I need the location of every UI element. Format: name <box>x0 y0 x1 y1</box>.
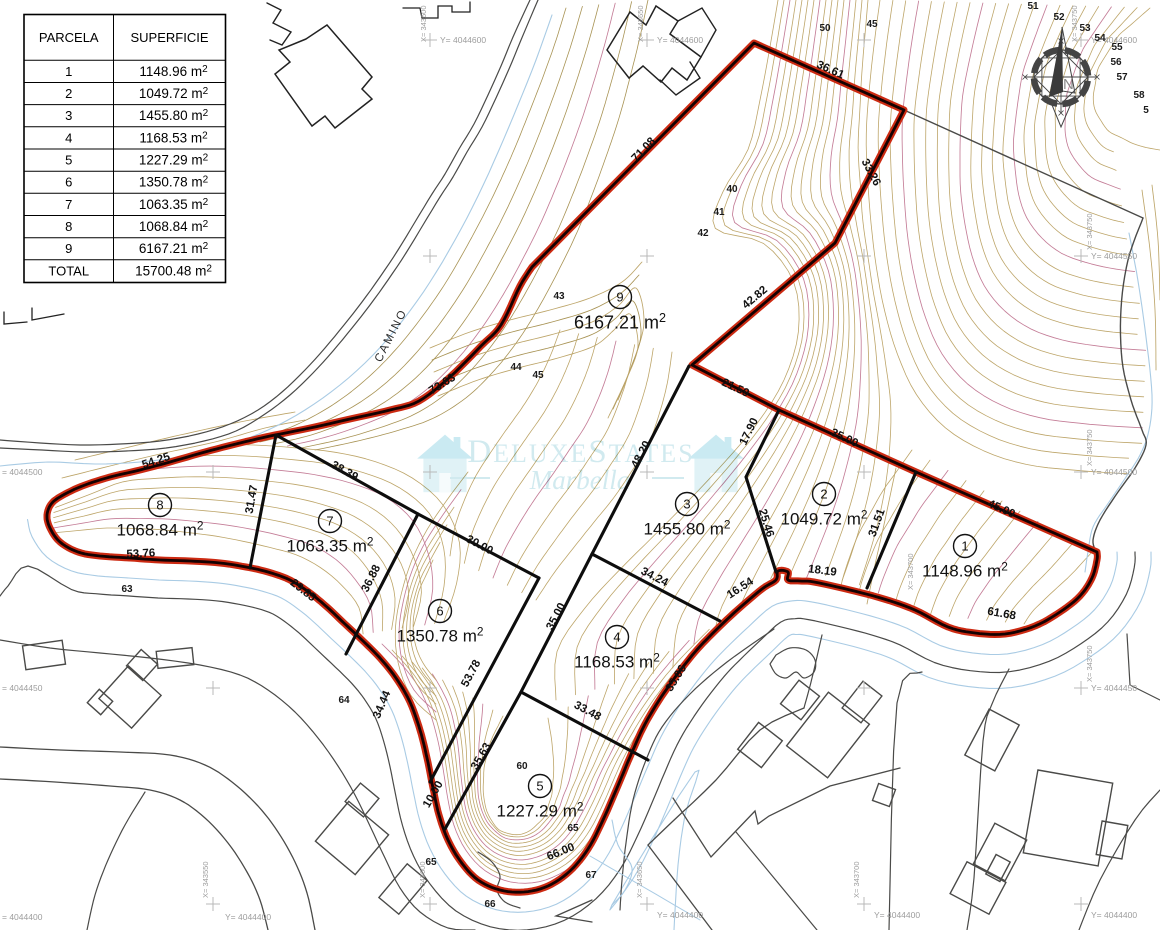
svg-text:X= 343650: X= 343650 <box>635 862 644 899</box>
svg-text:1068.84 m2: 1068.84 m2 <box>139 219 209 234</box>
svg-text:5: 5 <box>1143 105 1149 116</box>
svg-text:1063.35 m2: 1063.35 m2 <box>139 197 209 212</box>
svg-text:X= 343750: X= 343750 <box>1085 646 1094 683</box>
svg-text:2: 2 <box>820 487 827 502</box>
svg-text:5: 5 <box>65 153 72 168</box>
svg-text:SUPERFICIE: SUPERFICIE <box>130 30 208 45</box>
svg-text:1068.84 m2: 1068.84 m2 <box>117 519 204 540</box>
svg-text:55: 55 <box>1111 42 1123 53</box>
svg-text:7: 7 <box>326 514 333 529</box>
svg-text:4: 4 <box>65 130 72 145</box>
svg-text:42: 42 <box>697 228 709 239</box>
svg-text:1: 1 <box>65 64 72 79</box>
svg-text:Y= 4044500: Y= 4044500 <box>1091 467 1137 477</box>
svg-text:1350.78 m2: 1350.78 m2 <box>397 625 484 646</box>
svg-text:X= 343750: X= 343750 <box>1070 6 1079 43</box>
svg-text:1049.72 m2: 1049.72 m2 <box>139 86 209 101</box>
svg-text:6167.21 m2: 6167.21 m2 <box>139 241 209 256</box>
svg-text:57: 57 <box>1116 72 1128 83</box>
svg-text:X= 343700: X= 343700 <box>852 862 861 899</box>
svg-text:40: 40 <box>726 184 738 195</box>
svg-text:= 4044400: = 4044400 <box>2 912 43 922</box>
svg-text:1227.29 m2: 1227.29 m2 <box>139 153 209 168</box>
svg-text:PARCELA: PARCELA <box>39 30 99 45</box>
svg-text:63: 63 <box>121 584 133 595</box>
svg-text:66: 66 <box>484 899 496 910</box>
svg-text:53: 53 <box>1079 23 1091 34</box>
svg-text:1: 1 <box>961 539 968 554</box>
svg-text:7: 7 <box>65 197 72 212</box>
svg-text:41: 41 <box>713 207 725 218</box>
svg-text:1455.80 m2: 1455.80 m2 <box>139 108 209 123</box>
svg-text:51: 51 <box>1027 1 1039 12</box>
svg-text:1168.53 m2: 1168.53 m2 <box>574 651 660 672</box>
svg-text:Y= 4044400: Y= 4044400 <box>657 910 703 920</box>
svg-text:43: 43 <box>553 291 565 302</box>
svg-text:53.76: 53.76 <box>126 547 155 560</box>
svg-text:5: 5 <box>536 779 543 794</box>
svg-text:64: 64 <box>338 695 350 706</box>
svg-text:1049.72 m2: 1049.72 m2 <box>781 508 868 529</box>
svg-text:Y= 4044400: Y= 4044400 <box>225 912 271 922</box>
svg-text:1063.35 m2: 1063.35 m2 <box>287 535 374 556</box>
svg-text:58: 58 <box>1133 90 1145 101</box>
svg-text:1455.80 m2: 1455.80 m2 <box>644 518 731 539</box>
svg-text:6167.21 m2: 6167.21 m2 <box>574 311 666 332</box>
svg-text:3: 3 <box>65 108 72 123</box>
svg-text:54: 54 <box>1094 33 1106 44</box>
svg-text:= 4044500: = 4044500 <box>2 467 43 477</box>
svg-text:65: 65 <box>567 823 579 834</box>
svg-text:TOTAL: TOTAL <box>48 263 89 278</box>
svg-text:4: 4 <box>613 630 620 645</box>
svg-text:6: 6 <box>436 604 443 619</box>
svg-text:8: 8 <box>156 498 163 513</box>
svg-text:1148.96 m2: 1148.96 m2 <box>139 64 208 79</box>
svg-text:Marbella: Marbella <box>529 465 631 495</box>
svg-text:9: 9 <box>65 241 72 256</box>
svg-text:56: 56 <box>1110 57 1122 68</box>
svg-text:X= 343550: X= 343550 <box>201 862 210 899</box>
svg-text:6: 6 <box>65 175 72 190</box>
svg-text:50: 50 <box>819 23 831 34</box>
svg-text:44: 44 <box>510 362 522 373</box>
svg-text:= 4044450: = 4044450 <box>2 683 43 693</box>
svg-text:67: 67 <box>585 870 597 881</box>
svg-text:X= 343750: X= 343750 <box>1085 214 1094 251</box>
svg-text:8: 8 <box>65 219 72 234</box>
svg-text:Y= 4044600: Y= 4044600 <box>657 35 703 45</box>
svg-text:Y= 4044550: Y= 4044550 <box>1091 251 1137 261</box>
svg-text:60: 60 <box>516 761 528 772</box>
svg-text:Y= 4044450: Y= 4044450 <box>1091 683 1137 693</box>
svg-text:X= 343700: X= 343700 <box>906 554 915 591</box>
svg-text:52: 52 <box>1053 12 1065 23</box>
svg-text:9: 9 <box>616 290 623 305</box>
svg-text:65: 65 <box>425 857 437 868</box>
svg-text:15700.48 m2: 15700.48 m2 <box>135 263 212 278</box>
svg-text:45: 45 <box>532 370 544 381</box>
svg-text:Y= 4044400: Y= 4044400 <box>874 910 920 920</box>
svg-text:45: 45 <box>866 19 878 30</box>
svg-text:1350.78 m2: 1350.78 m2 <box>139 175 209 190</box>
svg-text:1227.29 m2: 1227.29 m2 <box>497 800 584 821</box>
svg-text:X= 343650: X= 343650 <box>636 6 645 43</box>
svg-text:Y= 4044600: Y= 4044600 <box>440 35 486 45</box>
svg-text:2: 2 <box>65 86 72 101</box>
svg-text:Y= 4044400: Y= 4044400 <box>1091 910 1137 920</box>
svg-text:3: 3 <box>683 497 690 512</box>
svg-text:1168.53 m2: 1168.53 m2 <box>139 130 208 145</box>
svg-text:1148.96 m2: 1148.96 m2 <box>922 560 1008 581</box>
svg-text:X= 343600: X= 343600 <box>419 6 428 43</box>
svg-text:X= 343750: X= 343750 <box>1085 430 1094 467</box>
